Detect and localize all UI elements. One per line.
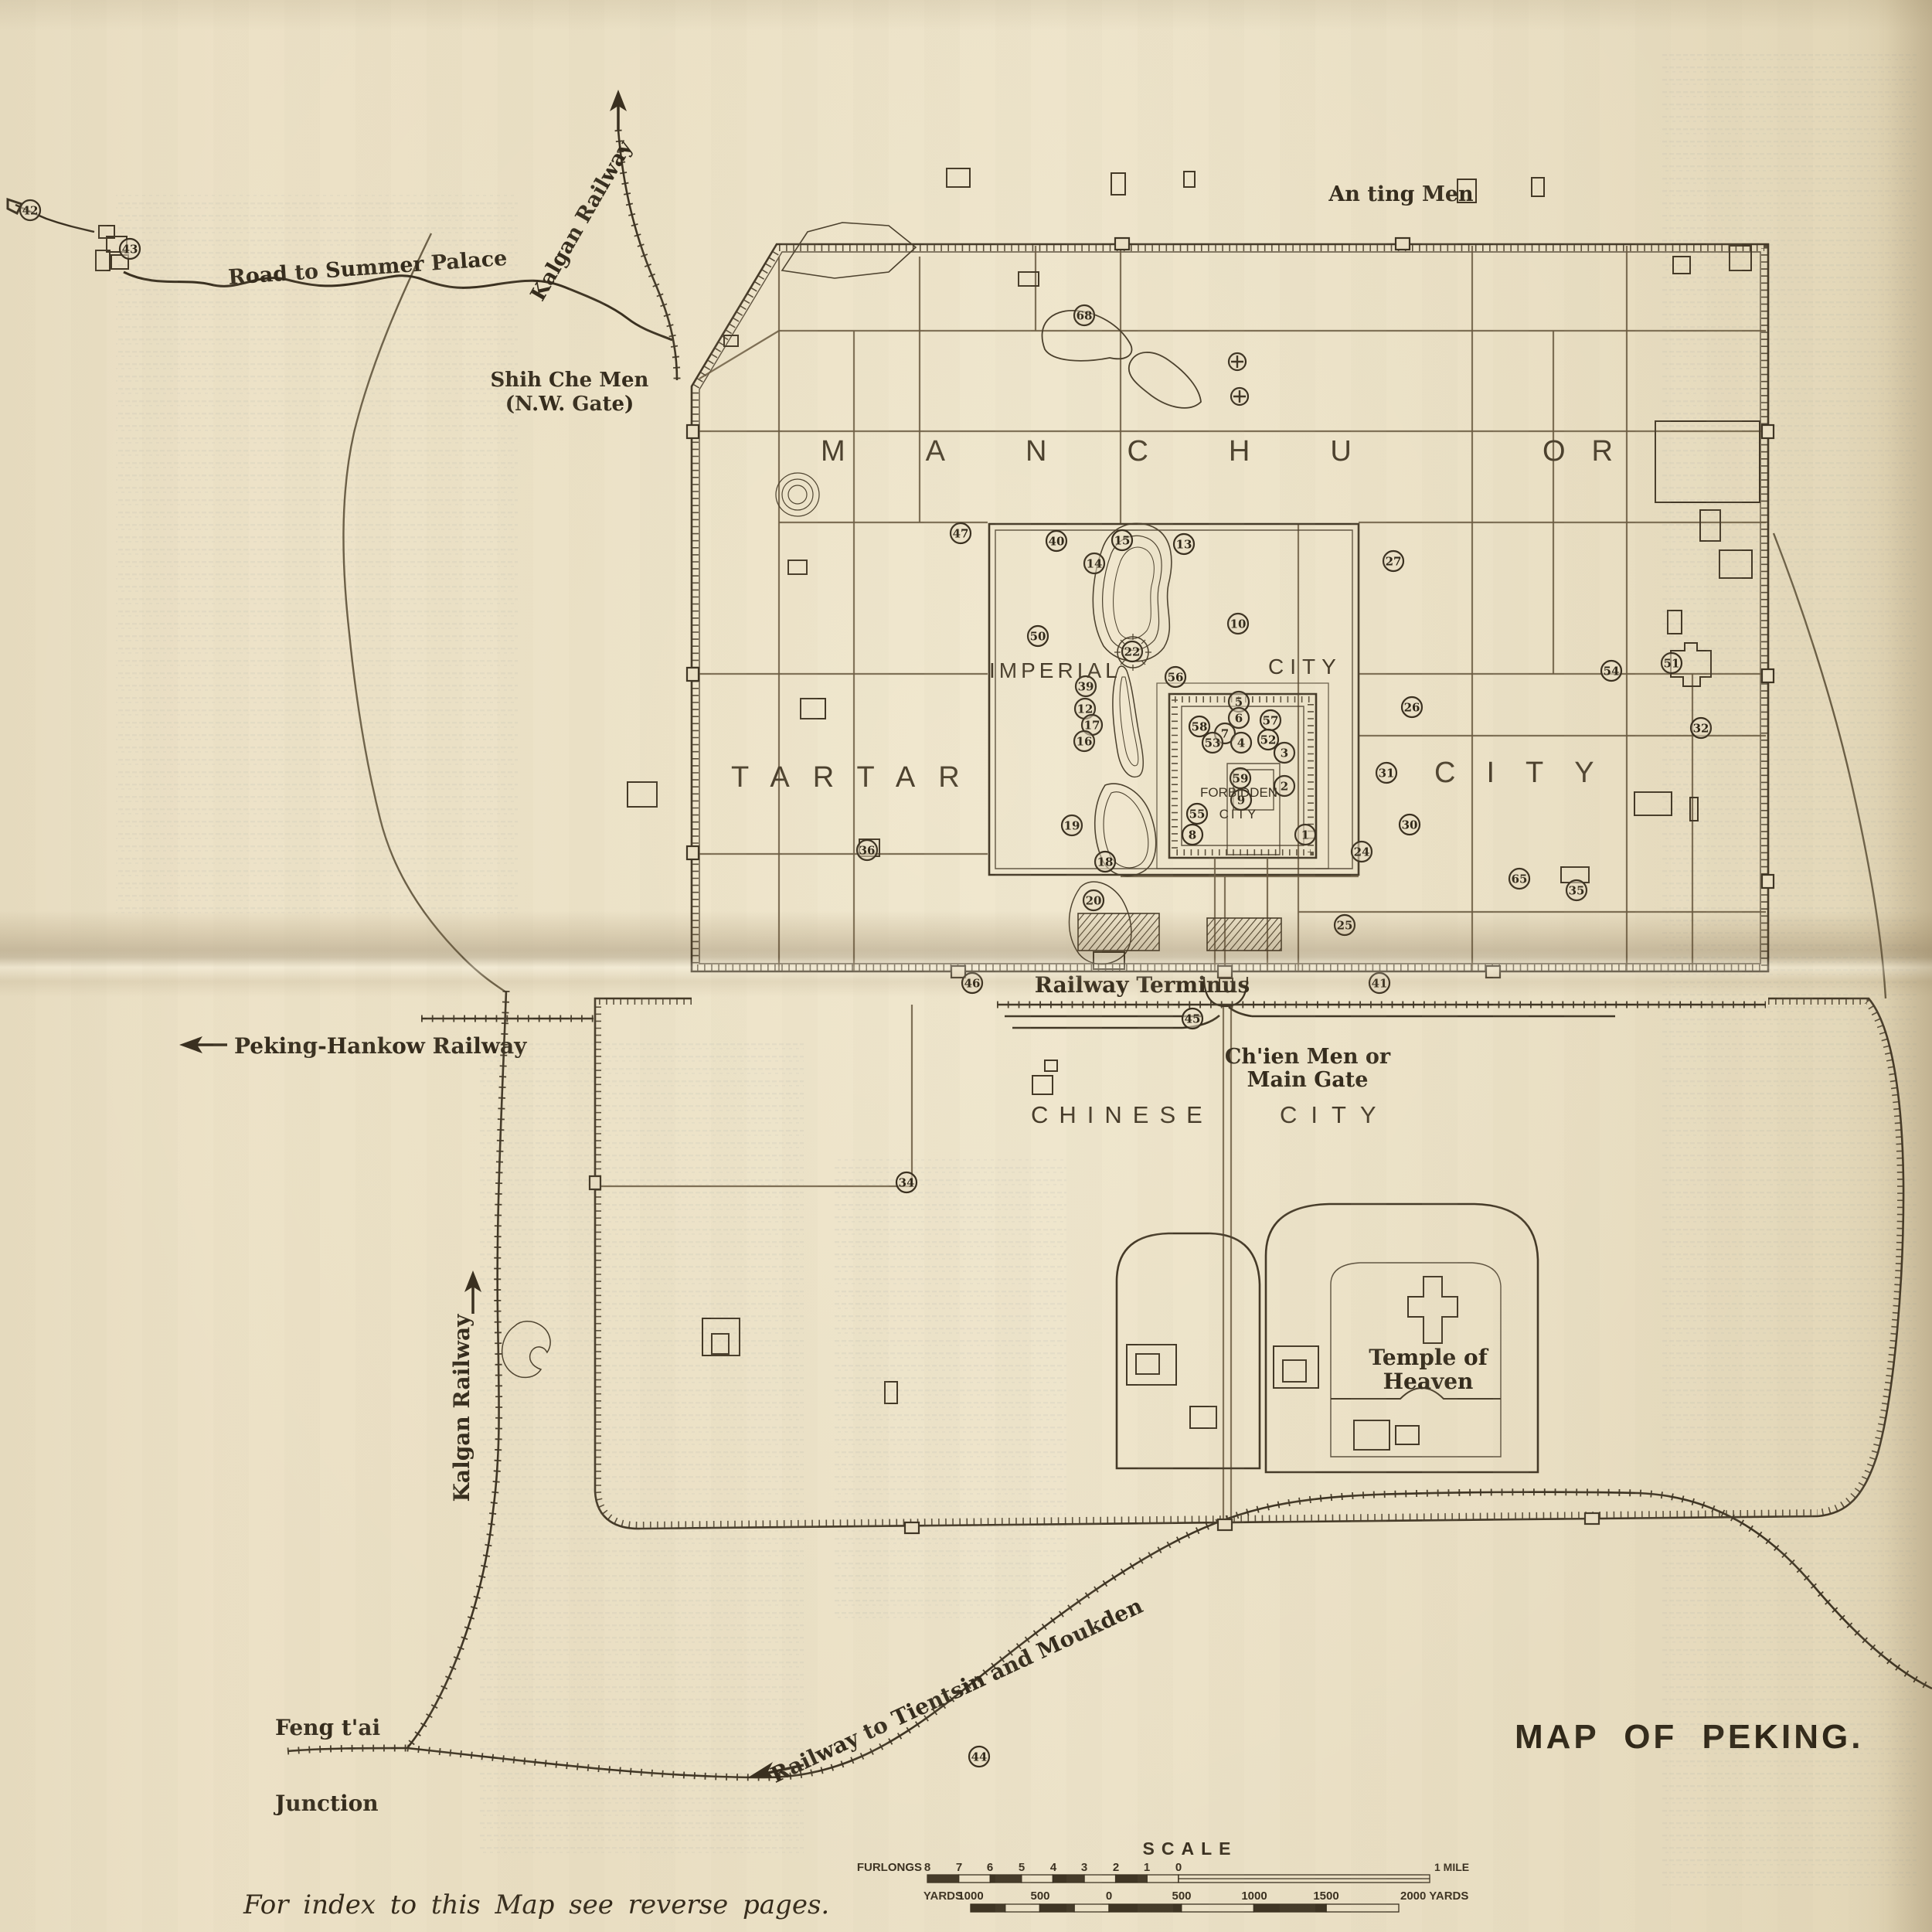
or-label: OR	[1543, 435, 1639, 468]
svg-text:13: 13	[1176, 538, 1192, 552]
map-marker: 1	[1295, 825, 1315, 845]
map-marker: 56	[1165, 667, 1185, 687]
svg-text:24: 24	[1354, 845, 1370, 859]
furlong-tick: 5	[1019, 1861, 1025, 1874]
svg-text:27: 27	[1386, 555, 1402, 569]
map-marker: 50	[1028, 626, 1048, 646]
map-marker: 10	[1228, 614, 1248, 634]
temple-of-heaven-enclosure	[1266, 1204, 1538, 1472]
map-marker: 47	[951, 523, 971, 543]
yards-tick: 500	[1030, 1889, 1049, 1903]
forbidden-label: FORBIDDEN	[1200, 785, 1277, 800]
map-marker: 53	[1202, 733, 1223, 753]
map-marker: 65	[1509, 869, 1529, 889]
chinese-city-word: CITY	[1280, 1101, 1390, 1128]
furlongs-label: FURLONGS	[857, 1861, 922, 1874]
svg-text:14: 14	[1087, 557, 1103, 571]
map-marker: 13	[1174, 534, 1194, 554]
map-marker: 43	[120, 239, 140, 259]
map-marker: 41	[1369, 973, 1389, 993]
map-marker: 35	[1566, 880, 1587, 900]
temple-of-heaven-label-line2: Heaven	[1383, 1369, 1474, 1394]
svg-text:20: 20	[1086, 894, 1102, 908]
furlong-tick: 8	[924, 1861, 930, 1874]
svg-text:42: 42	[22, 204, 39, 218]
map-marker: 46	[962, 973, 982, 993]
svg-text:15: 15	[1114, 534, 1131, 548]
map-marker: 45	[1182, 1009, 1202, 1029]
temple-of-agriculture-enclosure	[1117, 1233, 1260, 1468]
svg-text:58: 58	[1192, 720, 1208, 734]
furlong-tick: 4	[1050, 1861, 1057, 1874]
chien-men-label-line2: Main Gate	[1247, 1068, 1369, 1092]
index-caption: For index to this Map see reverse pages.	[243, 1889, 829, 1920]
map-marker: 31	[1376, 763, 1396, 783]
railway-terminus-label: Railway Terminus	[1035, 972, 1250, 998]
furlong-tick: 6	[987, 1861, 993, 1874]
map-marker: 22	[1122, 641, 1142, 662]
svg-text:47: 47	[953, 527, 969, 541]
svg-text:43: 43	[122, 243, 138, 257]
round-mound-hill	[776, 473, 819, 516]
map-marker: 34	[896, 1172, 917, 1192]
svg-text:12: 12	[1077, 702, 1094, 716]
map-marker: 8	[1182, 825, 1202, 845]
svg-text:36: 36	[859, 844, 876, 858]
mile-label: 1 MILE	[1434, 1861, 1469, 1873]
map-marker: 51	[1662, 653, 1682, 673]
lake-shichahai	[1042, 311, 1201, 408]
svg-text:17: 17	[1084, 719, 1100, 733]
yards-tick: 1000	[957, 1889, 983, 1903]
crossings-layer	[1229, 353, 1248, 405]
svg-text:45: 45	[1185, 1012, 1201, 1026]
yards-tick: 2000 YARDS	[1400, 1889, 1468, 1903]
kalgan-railway-north-label: Kalgan Railway	[526, 135, 638, 304]
svg-text:54: 54	[1604, 665, 1620, 679]
junction-label: Junction	[273, 1791, 379, 1816]
svg-text:56: 56	[1168, 671, 1184, 685]
svg-text:10: 10	[1230, 617, 1247, 631]
yards-tick: 0	[1106, 1889, 1112, 1903]
furlong-tick: 0	[1175, 1861, 1182, 1874]
kalgan-railway-south-label: Kalgan Railway	[449, 1314, 474, 1502]
peking-hankow-railway-label: Peking-Hankow Railway	[234, 1033, 527, 1059]
svg-text:26: 26	[1404, 701, 1420, 715]
map-marker: 57	[1260, 710, 1281, 730]
map-marker: 19	[1062, 815, 1082, 835]
svg-text:57: 57	[1263, 714, 1279, 728]
yards-tick: 1500	[1313, 1889, 1338, 1903]
chinese-label: CHINESE	[1031, 1101, 1213, 1128]
yards-tick: 1000	[1241, 1889, 1267, 1903]
map-marker: 32	[1691, 718, 1711, 738]
svg-text:51: 51	[1664, 657, 1680, 671]
svg-text:31: 31	[1379, 767, 1395, 781]
map-marker: 27	[1383, 551, 1403, 571]
map-marker: 30	[1400, 815, 1420, 835]
map-marker: 26	[1402, 697, 1422, 717]
svg-text:4: 4	[1237, 736, 1245, 750]
map-marker: 18	[1095, 852, 1115, 872]
map-marker: 58	[1189, 716, 1209, 736]
furlong-tick: 7	[956, 1861, 962, 1874]
svg-text:59: 59	[1233, 772, 1249, 786]
lake-zhonghai	[1113, 666, 1143, 777]
svg-text:2: 2	[1281, 780, 1288, 794]
feng-tai-label: Feng t'ai	[275, 1715, 380, 1740]
manchu-label: MANCHU	[821, 435, 1432, 468]
map-marker: 54	[1601, 661, 1621, 681]
map-marker: 44	[969, 1747, 989, 1767]
map-title: MAP OF PEKING.	[1515, 1718, 1863, 1756]
forbidden-city-word: CITY	[1219, 807, 1259, 821]
tartar-city-label: CITY	[1434, 757, 1625, 789]
map-marker: 16	[1074, 731, 1094, 751]
map-marker: 36	[857, 840, 877, 860]
svg-text:19: 19	[1064, 819, 1080, 833]
svg-text:55: 55	[1189, 808, 1206, 821]
svg-text:18: 18	[1097, 855, 1114, 869]
furlong-tick: 1	[1144, 1861, 1150, 1874]
svg-text:5: 5	[1235, 696, 1243, 709]
map-marker: 4	[1231, 733, 1251, 753]
svg-text:40: 40	[1049, 535, 1065, 549]
imperial-label: IMPERIAL	[989, 658, 1121, 682]
svg-text:52: 52	[1260, 733, 1277, 747]
temple-of-heaven-label-line1: Temple of	[1369, 1345, 1489, 1370]
svg-text:44: 44	[971, 1750, 988, 1764]
map-marker: 42	[20, 200, 40, 220]
svg-text:34: 34	[899, 1176, 915, 1190]
scanned-map-page: { "map": { "title": "MAP OF PEKING.", "c…	[0, 0, 1932, 1932]
svg-text:8: 8	[1189, 828, 1196, 842]
svg-text:53: 53	[1205, 736, 1221, 750]
map-marker: 20	[1083, 890, 1104, 910]
svg-text:1: 1	[1301, 828, 1309, 842]
map-marker: 55	[1187, 804, 1207, 824]
svg-text:65: 65	[1512, 872, 1528, 886]
svg-text:30: 30	[1402, 818, 1418, 832]
yards-tick: 500	[1172, 1889, 1191, 1903]
scale-title: SCALE	[1143, 1838, 1238, 1859]
road-crossing-symbol	[1229, 353, 1246, 370]
shih-che-men-label-line1: Shih Che Men	[491, 369, 649, 392]
map-marker: 25	[1335, 915, 1355, 935]
shih-che-men-label-line2: (N.W. Gate)	[505, 393, 634, 416]
svg-text:68: 68	[1077, 309, 1093, 323]
railway-terminus-sidings	[997, 1005, 1766, 1028]
peking-map-drawing: 4243684740151314271050225451563912261758…	[0, 0, 1932, 1932]
svg-text:32: 32	[1693, 722, 1709, 736]
furlong-tick: 2	[1113, 1861, 1119, 1874]
svg-text:22: 22	[1124, 645, 1141, 659]
road-crossing-symbol	[1231, 388, 1248, 405]
map-marker: 68	[1074, 305, 1094, 325]
map-marker: 24	[1352, 842, 1372, 862]
map-marker: 3	[1274, 743, 1294, 763]
furlong-tick: 3	[1081, 1861, 1087, 1874]
map-marker: 15	[1112, 530, 1132, 550]
imperial-city-word: CITY	[1268, 655, 1342, 679]
svg-text:6: 6	[1235, 712, 1243, 726]
svg-text:46: 46	[964, 977, 981, 991]
tartar-label: TARTAR	[731, 761, 983, 794]
chien-men-label-line1: Ch'ien Men or	[1225, 1045, 1391, 1069]
map-marker: 40	[1046, 531, 1066, 551]
svg-text:16: 16	[1077, 735, 1093, 749]
map-marker: 52	[1258, 730, 1278, 750]
svg-text:25: 25	[1337, 919, 1353, 933]
svg-text:35: 35	[1569, 884, 1585, 898]
an-ting-men-label: An ting Men	[1328, 182, 1474, 206]
svg-text:50: 50	[1030, 630, 1046, 644]
svg-text:3: 3	[1281, 747, 1288, 760]
svg-text:41: 41	[1372, 977, 1388, 991]
map-marker: 14	[1084, 553, 1104, 573]
northwest-hill	[782, 223, 916, 278]
